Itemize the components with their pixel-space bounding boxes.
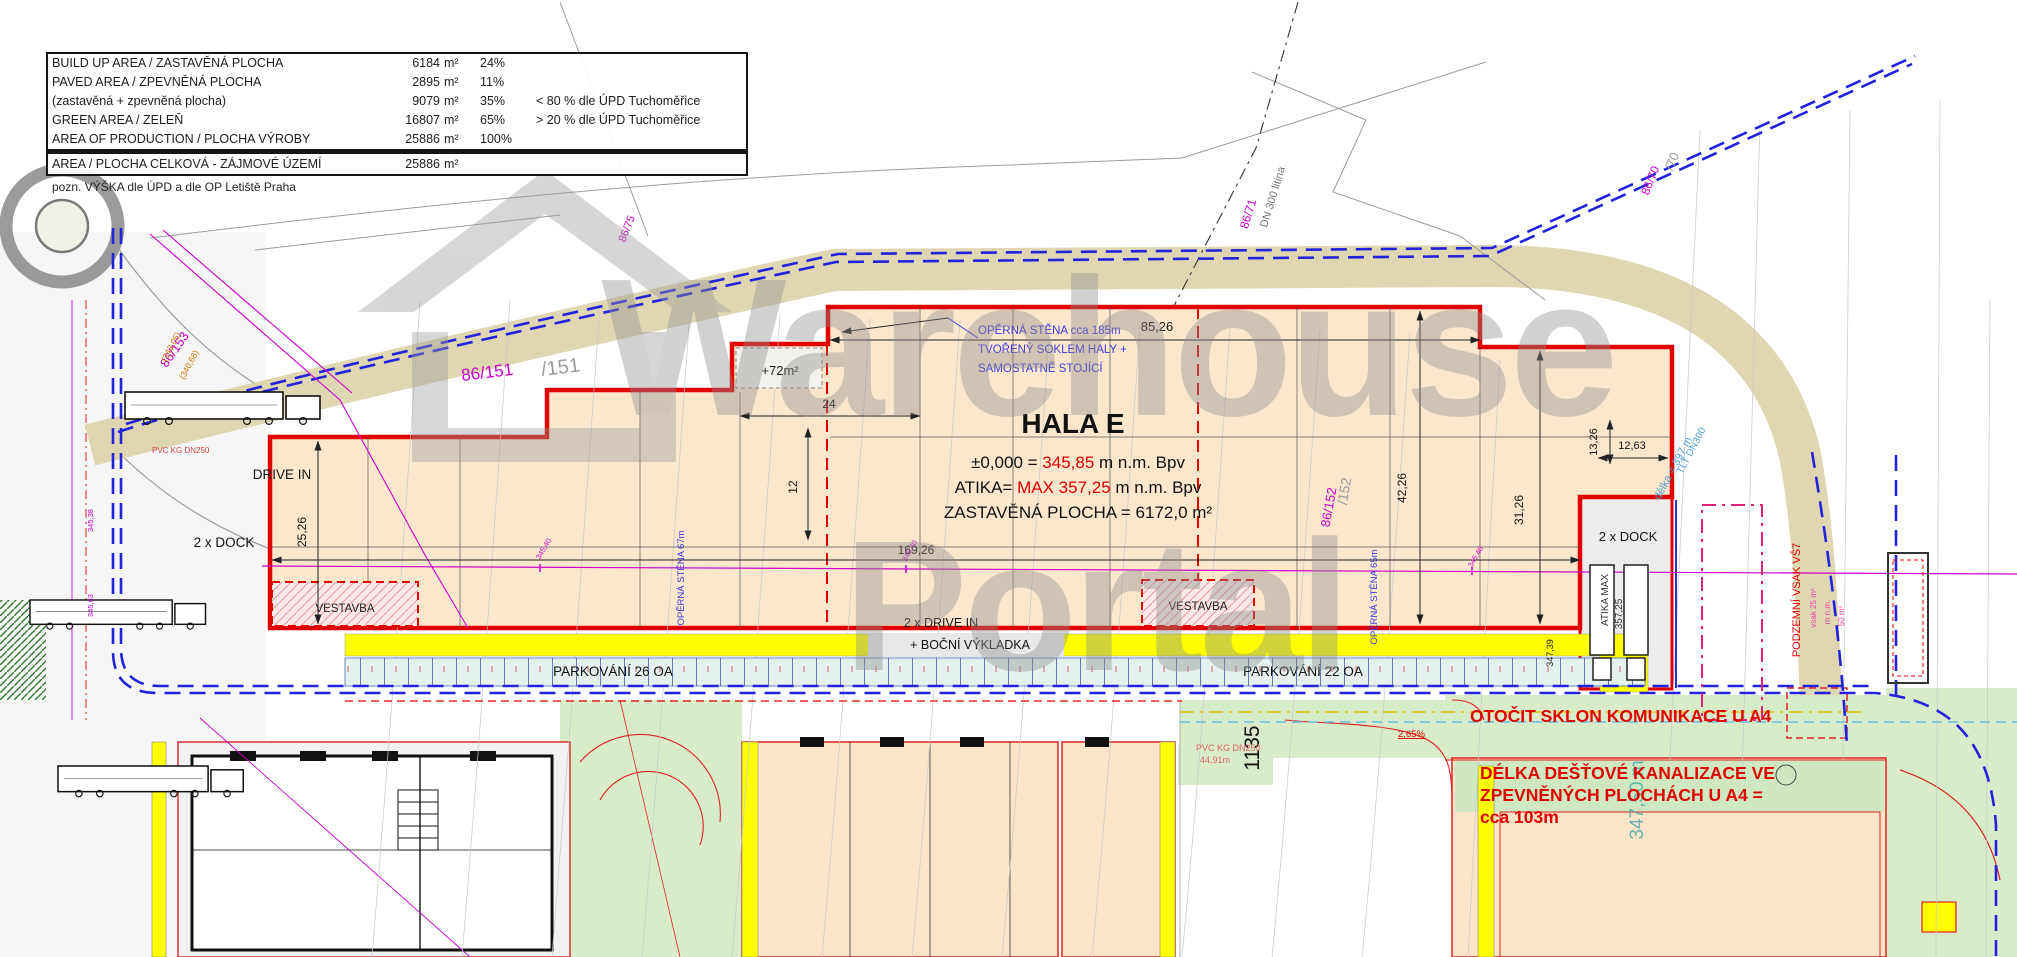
atika-max-label: ATIKA MAX: [1600, 574, 1611, 626]
row-label: BUILD UP AREA / ZASTAVĚNÁ PLOCHA: [48, 54, 384, 73]
soakaway-title: PODZEMNÍ VSAK VŠ7: [1790, 543, 1803, 657]
total-value: 25886: [384, 155, 440, 174]
rain-note-line1: DÉLKA DEŠŤOVÉ KANALIZACE VE: [1480, 762, 1775, 783]
soakaway-sub1: vsak 25 m³: [1809, 588, 1818, 627]
row-value: 2895: [384, 73, 440, 92]
rain-note-line2: ZPEVNĚNÝCH PLOCHÁCH U A4 =: [1480, 784, 1763, 805]
pvc-note-line1: PVC KG DN250: [1196, 743, 1261, 753]
row-percent: 11%: [470, 73, 522, 92]
hall-atika-prefix: ATIKA=: [955, 478, 1018, 497]
area-summary-table: BUILD UP AREA / ZASTAVĚNÁ PLOCHA 6184 m²…: [46, 52, 748, 197]
row-label: PAVED AREA / ZPEVNĚNÁ PLOCHA: [48, 73, 384, 92]
dim-42-26: 42,26: [1395, 473, 1409, 503]
row-unit: m²: [440, 130, 470, 149]
hall-atika-line: ATIKA= MAX 357,25 m n.m. Bpv: [955, 478, 1202, 497]
row-note: < 80 % dle ÚPD Tuchoměřice: [522, 92, 746, 111]
wall-65-label: OPĚRNÁ STĚNA 65m: [1369, 549, 1380, 644]
row-percent: 65%: [470, 111, 522, 130]
row-percent: 24%: [470, 54, 522, 73]
row-label: AREA OF PRODUCTION / PLOCHA VÝROBY: [48, 130, 384, 149]
soakaway-dashed-box: [1702, 505, 1762, 720]
pipe-cast-label: DN 300 litina: [1258, 164, 1288, 229]
area-table-main-box: BUILD UP AREA / ZASTAVĚNÁ PLOCHA 6184 m²…: [46, 52, 748, 151]
parcel-151-gray: /151: [540, 354, 581, 381]
wall-67-label: OPĚRNÁ STĚNA 67m: [676, 530, 687, 625]
row-value: 9079: [384, 92, 440, 111]
table-row: AREA OF PRODUCTION / PLOCHA VÝROBY 25886…: [48, 130, 746, 149]
row-unit: m²: [440, 92, 470, 111]
soakaway-sub2: m n.m.: [1823, 600, 1832, 624]
pvc-note-line2: 44,91m: [1200, 755, 1230, 765]
elev-345-38: 345,38: [86, 509, 95, 532]
dock-left-label: 2 x DOCK: [194, 535, 255, 550]
table-footnote: pozn. VÝŠKA dle ÚPD a dle OP Letiště Pra…: [46, 176, 748, 197]
site-plan: HALA E ±0,000 = 345,85 m n.m. Bpv ATIKA=…: [0, 0, 2017, 957]
row-value: 16807: [384, 111, 440, 130]
yellow-pad: [1922, 902, 1956, 932]
row-value: 6184: [384, 54, 440, 73]
soakaway-sub3: 50 m³: [1837, 605, 1846, 626]
watermark-text-line1: Warehouse: [601, 238, 1614, 457]
table-row: PAVED AREA / ZPEVNĚNÁ PLOCHA 2895 m² 11%: [48, 73, 746, 92]
area-table-total-box: AREA / PLOCHA CELKOVÁ - ZÁJMOVÉ ÚZEMÍ 25…: [46, 151, 748, 176]
row-unit: m²: [440, 111, 470, 130]
dim-25-26: 25,26: [295, 517, 309, 547]
row-unit: m²: [440, 73, 470, 92]
hall-atika-value: MAX 357,25: [1017, 478, 1111, 497]
row-percent: 100%: [470, 130, 522, 149]
building-b: [742, 742, 1058, 957]
spot-elevation-347-39: 347,39: [1545, 639, 1555, 667]
hall-atika-suffix: m n.m. Bpv: [1111, 478, 1202, 497]
slope-percent-label: 2,65%: [1398, 729, 1425, 740]
table-total-row: AREA / PLOCHA CELKOVÁ - ZÁJMOVÉ ÚZEMÍ 25…: [48, 154, 746, 174]
row-label: GREEN AREA / ZELEŇ: [48, 111, 384, 130]
pvc-left-label: PVC KG DN250: [152, 446, 210, 455]
soakaway-tank: [1888, 553, 1928, 683]
table-row: (zastavěná + zpevněná plocha) 9079 m² 35…: [48, 92, 746, 111]
atika-max-value: 357,25: [1614, 598, 1625, 629]
table-row: GREEN AREA / ZELEŇ 16807 m² 65% > 20 % d…: [48, 111, 746, 130]
row-label: (zastavěná + zpevněná plocha): [48, 92, 384, 111]
row-value: 25886: [384, 130, 440, 149]
rain-note-line3: cca 103m: [1480, 807, 1559, 827]
green-area: [1445, 695, 1890, 760]
dim-31-26: 31,26: [1512, 495, 1526, 525]
elev-345-63: 345,63: [86, 594, 95, 617]
total-unit: m²: [440, 155, 746, 174]
dock-right-label: 2 x DOCK: [1599, 529, 1658, 544]
row-unit: m²: [440, 54, 470, 73]
green-area: [560, 700, 742, 957]
parking-left-label: PARKOVÁNÍ 26 OA: [553, 664, 673, 679]
drive-in-label: DRIVE IN: [253, 467, 312, 482]
row-note: > 20 % dle ÚPD Tuchoměřice: [522, 111, 746, 130]
building-a: [192, 756, 552, 950]
total-label: AREA / PLOCHA CELKOVÁ - ZÁJMOVÉ ÚZEMÍ: [48, 155, 384, 174]
watermark-text-line2: Portal: [843, 503, 1346, 710]
building-c: [1062, 742, 1175, 957]
dim-12-63: 12,63: [1618, 440, 1646, 452]
parcel-86-71: 86/71: [1237, 197, 1259, 230]
vestavba-left-label: VESTAVBA: [315, 603, 374, 615]
row-percent: 35%: [470, 92, 522, 111]
roundabout-island: [36, 200, 88, 252]
table-row: BUILD UP AREA / ZASTAVĚNÁ PLOCHA 6184 m²…: [48, 54, 746, 73]
slope-note: OTOČIT SKLON KOMUNIKACE U A4: [1470, 705, 1772, 726]
dim-12: 12: [786, 480, 800, 494]
